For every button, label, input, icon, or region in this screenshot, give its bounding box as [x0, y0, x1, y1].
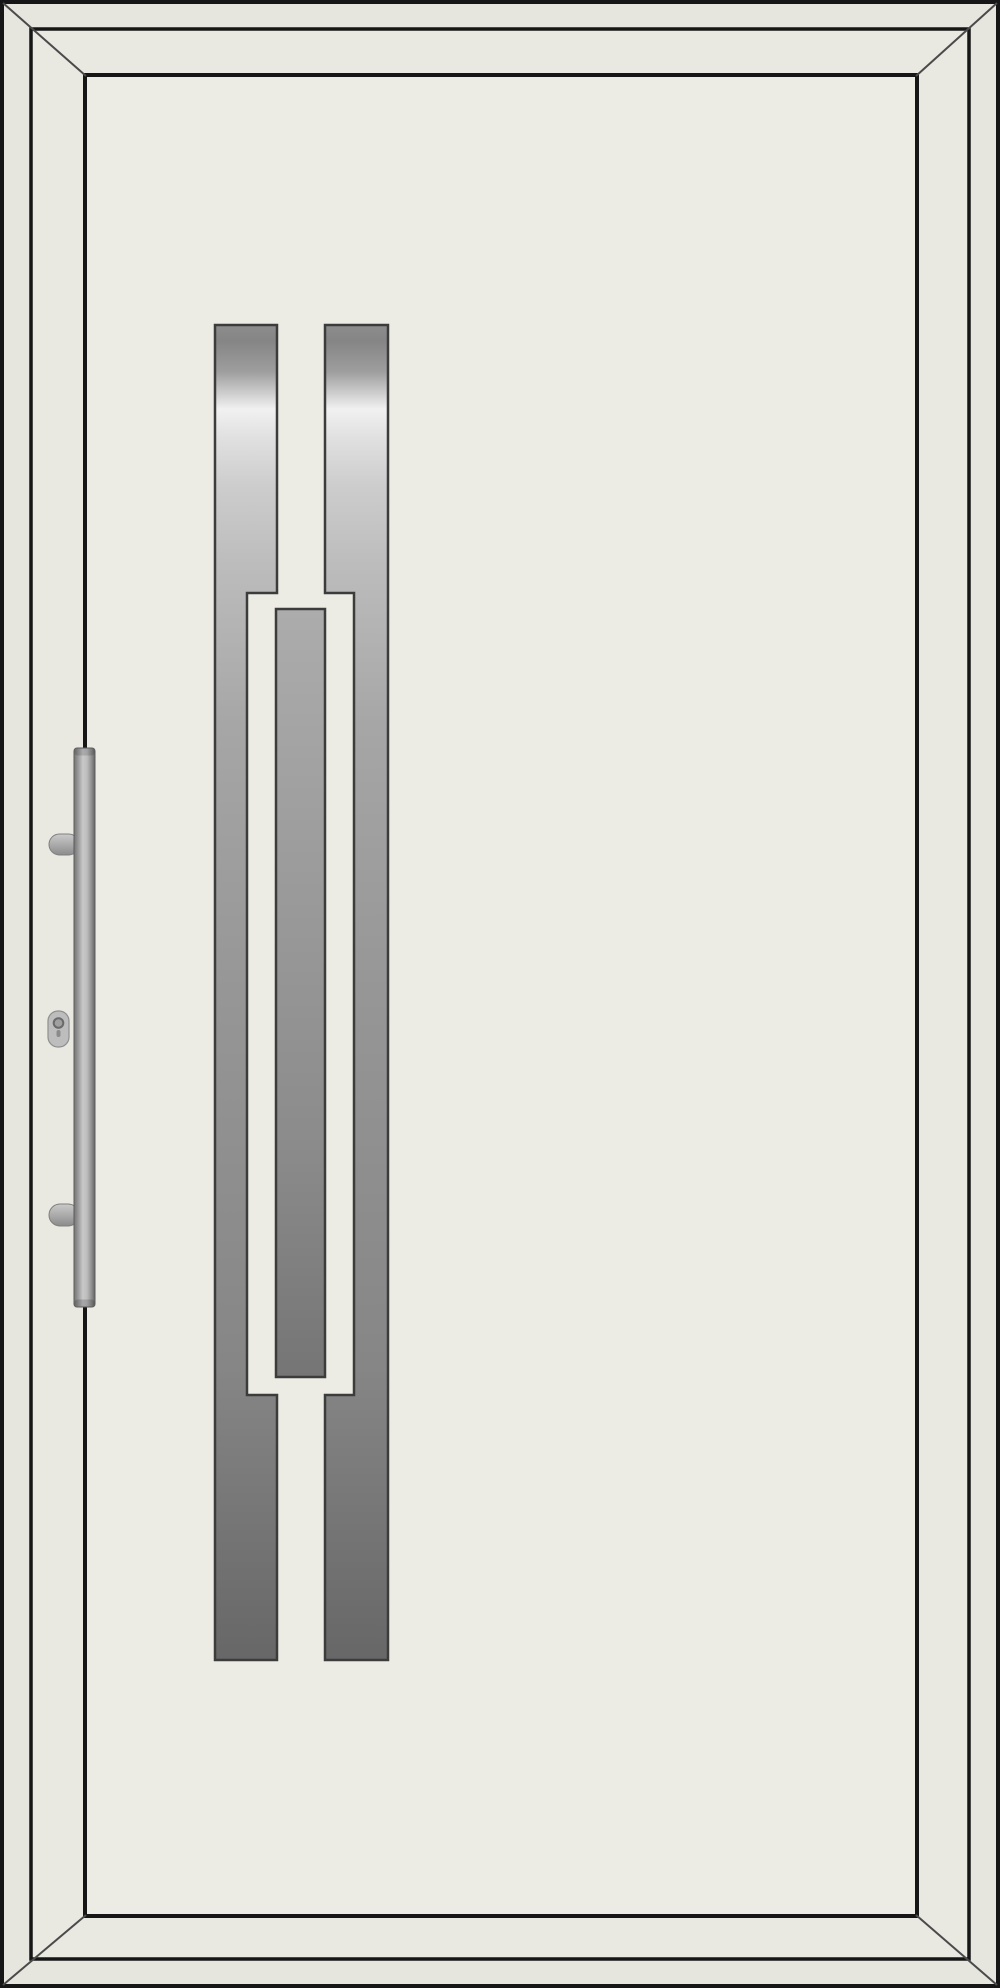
handle-top-cap	[75, 749, 95, 756]
key-cylinder	[48, 1011, 69, 1047]
cylinder-escutcheon	[48, 1011, 69, 1047]
keyhole-slot-icon	[57, 1030, 61, 1037]
keyhole-icon	[54, 1018, 64, 1028]
handle-bottom-cap	[75, 1300, 95, 1307]
stainless-inlay-center	[276, 609, 325, 1377]
pull-bar-handle	[74, 748, 95, 1307]
handle-bar	[74, 748, 95, 1307]
door-panel	[85, 75, 917, 1916]
door-product-image	[0, 0, 1000, 1988]
door-render-canvas	[0, 0, 1000, 1988]
